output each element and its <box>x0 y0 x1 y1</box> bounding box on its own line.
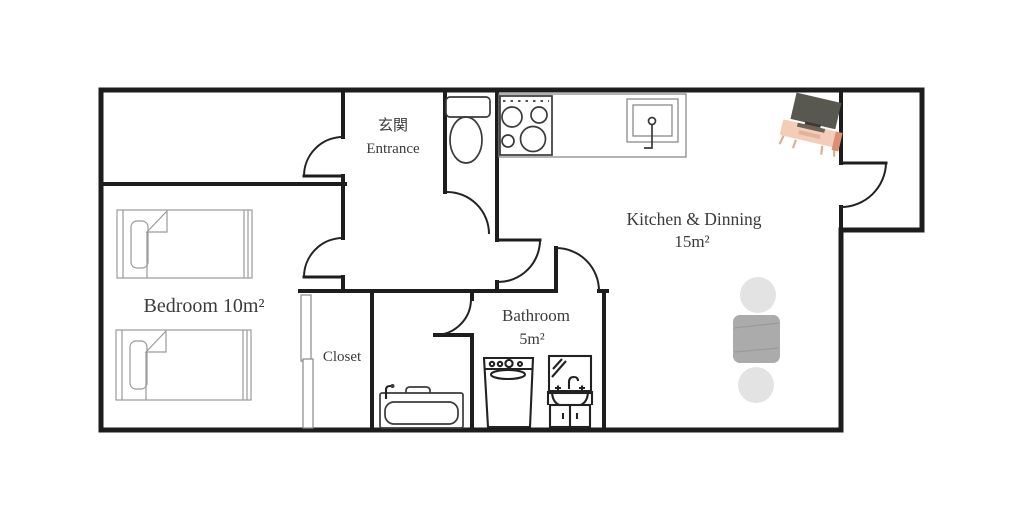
entrance-label-ja: 玄関 <box>378 117 408 134</box>
toilet-icon <box>446 97 490 163</box>
dining-set <box>733 277 780 403</box>
closet-sliding-door-icon <box>301 295 313 428</box>
chair-icon <box>738 367 774 403</box>
washing-machine-icon <box>484 358 533 427</box>
bed-icon <box>116 330 251 400</box>
bed-icon <box>117 210 252 278</box>
chair-icon <box>740 277 776 313</box>
kitchen-dining-area: 15m² <box>674 232 709 251</box>
closet-label: Closet <box>323 349 362 365</box>
entrance-label-en: Entrance <box>366 141 420 157</box>
dining-table-icon <box>733 315 780 363</box>
gas-stove-icon <box>500 96 552 155</box>
vanity-sink-icon <box>548 356 592 427</box>
kitchen-dining-label: Kitchen & Dinning <box>626 209 761 229</box>
bathroom-area: 5m² <box>519 331 544 348</box>
tv-on-stand-icon <box>777 91 849 158</box>
bedroom-label: Bedroom 10m² <box>144 295 265 317</box>
kitchen-sink-icon <box>627 99 678 148</box>
floor-plan: 玄関 Entrance Kitchen & Dinning 15m² Bedro… <box>0 0 1024 527</box>
bathroom-label: Bathroom <box>502 306 570 325</box>
door-leaves <box>304 163 886 277</box>
bathtub-icon <box>380 384 463 428</box>
door-swing-arcs <box>304 137 886 335</box>
kitchen-counter <box>499 94 686 157</box>
